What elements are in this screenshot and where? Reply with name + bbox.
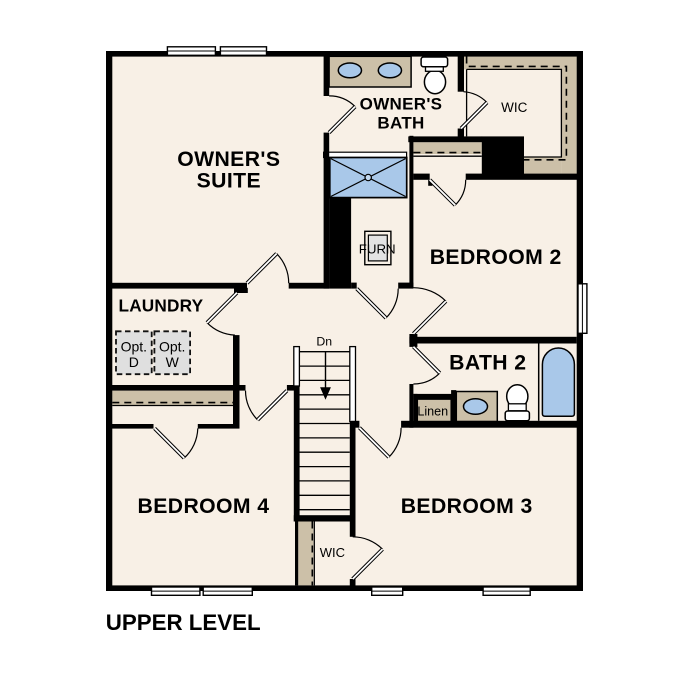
- svg-text:BATH 2: BATH 2: [449, 352, 526, 375]
- svg-text:D: D: [129, 354, 139, 370]
- svg-text:BEDROOM 2: BEDROOM 2: [430, 246, 562, 269]
- svg-text:WIC: WIC: [320, 545, 345, 560]
- svg-text:OWNER'S: OWNER'S: [177, 148, 280, 171]
- svg-text:FURN: FURN: [359, 242, 396, 257]
- svg-text:Opt.: Opt.: [159, 338, 185, 354]
- svg-text:UPPER LEVEL: UPPER LEVEL: [106, 610, 261, 635]
- svg-text:Linen: Linen: [417, 405, 448, 419]
- svg-text:W: W: [166, 354, 180, 370]
- svg-text:Dn: Dn: [316, 335, 332, 349]
- svg-text:OWNER'S: OWNER'S: [360, 95, 443, 114]
- svg-text:BEDROOM 3: BEDROOM 3: [401, 495, 533, 518]
- svg-text:LAUNDRY: LAUNDRY: [119, 296, 204, 316]
- svg-text:BATH: BATH: [377, 114, 424, 133]
- svg-text:Opt.: Opt.: [121, 338, 147, 354]
- svg-text:SUITE: SUITE: [197, 170, 261, 193]
- svg-text:BEDROOM 4: BEDROOM 4: [138, 495, 270, 518]
- svg-text:WIC: WIC: [501, 100, 527, 115]
